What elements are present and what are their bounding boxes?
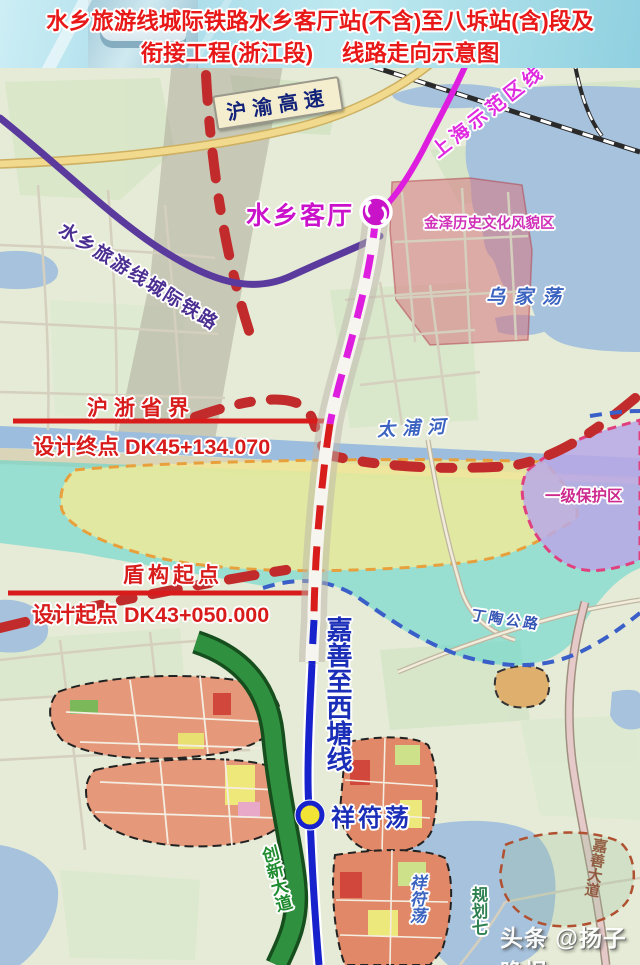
station-shuixiang-keting-label: 水乡客厅 bbox=[246, 196, 354, 232]
design-end-label: 设计终点 DK45+134.070 bbox=[33, 430, 270, 461]
protection-zone-label: 一级保护区 bbox=[545, 484, 623, 506]
taipu-river-label: 太浦河 bbox=[376, 412, 452, 442]
planning-seven-label: 规划七 bbox=[466, 886, 490, 936]
route-map-page: 水乡旅游线城际铁路水乡客厅站(不含)至八坼站(含)段及 衔接工程(浙江段) 线路… bbox=[0, 0, 640, 965]
watermark: 头条 @扬子晚报 bbox=[500, 919, 640, 965]
station-marker-xiangfudang bbox=[295, 800, 326, 831]
jinze-zone-label: 金泽历史文化风貌区 bbox=[424, 212, 555, 233]
xiangfudang-lake-label: 祥符荡 bbox=[404, 874, 428, 924]
jiashan-xitang-line-label: 嘉善至西塘线 bbox=[320, 616, 357, 772]
wujiadang-lake-label: 乌家荡 bbox=[486, 282, 570, 309]
title-line2: 衔接工程(浙江段) 线路走向示意图 bbox=[0, 36, 640, 68]
station-xiangfudang-label: 祥符荡 bbox=[331, 798, 412, 833]
province-border-label: 沪浙省界 bbox=[87, 392, 195, 422]
design-start-label: 设计起点 DK43+050.000 bbox=[32, 598, 269, 629]
map-canvas bbox=[0, 0, 640, 965]
title-line1: 水乡旅游线城际铁路水乡客厅站(不含)至八坼站(含)段及 bbox=[0, 4, 640, 36]
jinze-zone-shape bbox=[390, 178, 532, 345]
title-bar: 水乡旅游线城际铁路水乡客厅站(不含)至八坼站(含)段及 衔接工程(浙江段) 线路… bbox=[0, 0, 640, 68]
shield-start-label: 盾构起点 bbox=[123, 559, 223, 589]
station-marker-shuixiang-keting bbox=[361, 197, 391, 227]
